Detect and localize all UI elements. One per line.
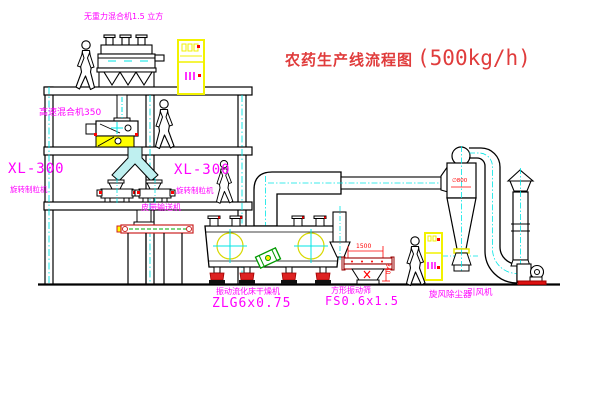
induced-draft-fan-drawing bbox=[517, 264, 546, 285]
fluid-bed-dryer-drawing bbox=[205, 216, 341, 284]
belt-conveyor-drawing bbox=[117, 210, 193, 284]
label-sieve-model: FS0.6x1.5 bbox=[325, 295, 399, 307]
vibration-mounts bbox=[209, 267, 331, 284]
process-flow-drawing: 农药生产线流程图 (500kg/h) 无重力混合机1.5 立方 高速混合机350… bbox=[0, 0, 600, 403]
title-capacity: (500kg/h) bbox=[417, 46, 531, 70]
control-cabinet-lower bbox=[425, 233, 442, 280]
drawing-title: 农药生产线流程图 (500kg/h) bbox=[285, 46, 531, 70]
high-speed-mixer-drawing bbox=[86, 95, 138, 147]
person-figure bbox=[76, 41, 95, 90]
label-granulator-model-1: XL-300 bbox=[8, 162, 65, 176]
label-granulator-name-1: 旋转制粒机 bbox=[10, 186, 48, 194]
label-cyclone: 旋风除尘器 bbox=[429, 291, 472, 300]
label-granulator-name-2: 旋转制粒机 bbox=[176, 187, 214, 195]
dimension-sieve-height: 340 bbox=[384, 263, 390, 274]
label-high-speed-mixer: 高速混合机350 bbox=[39, 109, 101, 118]
cyclone-drawing bbox=[441, 146, 480, 272]
title-text: 农药生产线流程图 bbox=[285, 49, 413, 70]
person-figure bbox=[156, 100, 175, 149]
label-belt-conveyor: 皮带输送机 bbox=[141, 204, 181, 212]
label-gravity-mixer: 无重力混合机1.5 立方 bbox=[84, 13, 163, 21]
label-fan: 引风机 bbox=[467, 289, 493, 298]
granulator-1-drawing bbox=[97, 178, 137, 203]
label-dryer-model: ZLG6x0.75 bbox=[212, 297, 291, 310]
label-granulator-model-2: XL-300 bbox=[174, 163, 231, 177]
label-dryer-name: 振动流化床干燥机 bbox=[216, 288, 280, 296]
gravity-mixer-drawing bbox=[97, 35, 164, 87]
dimension-sieve-length: 1500 bbox=[356, 244, 371, 250]
control-cabinet-upper bbox=[178, 40, 204, 94]
dimension-cyclone-diameter: ∅800 bbox=[452, 179, 467, 185]
granulator-2-drawing bbox=[135, 178, 175, 203]
dryer-exhaust-duct bbox=[254, 172, 447, 230]
person-figure bbox=[407, 237, 426, 286]
